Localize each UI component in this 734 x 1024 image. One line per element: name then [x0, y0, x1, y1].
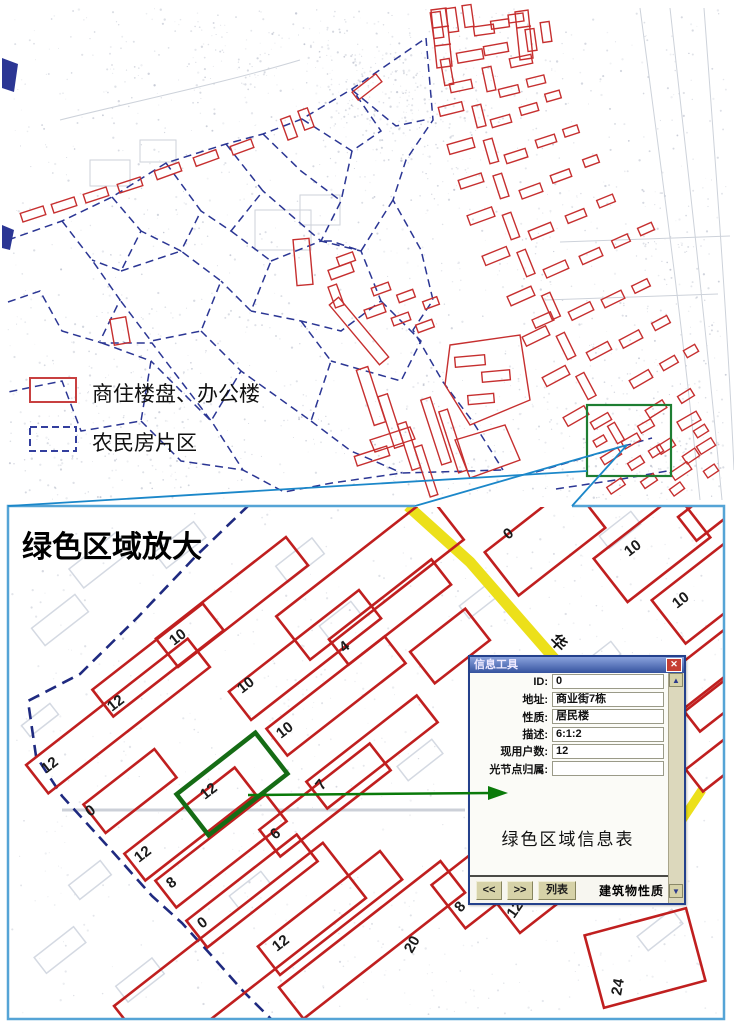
field-value-input[interactable]: 6:1:2	[552, 727, 664, 742]
field-row: 现用户数:12	[470, 743, 668, 760]
field-value-input[interactable]: 0	[552, 674, 664, 689]
scroll-down-icon: ▼	[672, 887, 680, 896]
field-label: 描述:	[470, 726, 552, 742]
scroll-up-button[interactable]: ▲	[669, 673, 683, 687]
field-label: 光节点归属:	[470, 761, 552, 777]
list-button[interactable]: 列表	[538, 881, 576, 900]
field-row: 描述:6:1:2	[470, 726, 668, 743]
building-outlines-overview	[20, 4, 718, 496]
scroll-down-button[interactable]: ▼	[669, 884, 683, 898]
field-row: 地址:商业街7栋	[470, 691, 668, 708]
field-label: ID:	[470, 676, 552, 688]
prev-button[interactable]: <<	[476, 881, 502, 900]
dialog-bottom-bar: << >> 列表 建筑物性质	[470, 875, 668, 903]
legend-label-commercial: 商住楼盘、办公楼	[92, 383, 260, 406]
legend-label-farmer: 农民房片区	[92, 432, 197, 455]
field-row: ID:0	[470, 673, 668, 690]
field-value-input[interactable]: 居民楼	[552, 709, 664, 724]
field-row: 光节点归属:	[470, 760, 668, 777]
dialog-title: 信息工具	[474, 657, 666, 673]
scroll-up-icon: ▲	[672, 676, 680, 685]
info-note: 绿色区域信息表	[470, 825, 666, 850]
field-label: 地址:	[470, 691, 552, 707]
dialog-body: ID:0地址:商业街7栋性质:居民楼描述:6:1:2现用户数:12光节点归属: …	[470, 673, 684, 903]
basemap-texture	[8, 8, 727, 501]
field-label: 现用户数:	[470, 743, 552, 759]
legend: 商住楼盘、办公楼 农民房片区	[30, 378, 260, 455]
dialog-titlebar[interactable]: 信息工具 ✕	[470, 657, 684, 673]
gis-screenshot: { "overview_map": { "legend": { "items":…	[0, 0, 734, 1024]
close-button[interactable]: ✕	[666, 658, 682, 672]
next-button[interactable]: >>	[507, 881, 533, 900]
field-value-input[interactable]: 12	[552, 744, 664, 759]
field-value-input[interactable]: 商业街7栋	[552, 692, 664, 707]
dialog-fields: ID:0地址:商业街7栋性质:居民楼描述:6:1:2现用户数:12光节点归属:	[470, 673, 668, 777]
close-icon: ✕	[670, 659, 678, 669]
field-label: 性质:	[470, 709, 552, 725]
farmer-area-marks	[2, 58, 18, 250]
field-value-input[interactable]	[552, 761, 664, 776]
building-outline-blocks	[370, 8, 533, 478]
zoom-panel-title: 绿色区域放大	[22, 531, 202, 564]
basemap-lines	[60, 8, 734, 500]
farmer-area-boundaries	[8, 38, 667, 492]
overview-map[interactable]: 商住楼盘、办公楼 农民房片区	[2, 4, 734, 500]
field-row: 性质:居民楼	[470, 708, 668, 725]
dialog-scrollbar[interactable]: ▲ ▼	[668, 673, 684, 903]
status-label: 建筑物性质	[581, 882, 668, 899]
info-dialog[interactable]: 信息工具 ✕ ID:0地址:商业街7栋性质:居民楼描述:6:1:2现用户数:12…	[468, 655, 686, 905]
